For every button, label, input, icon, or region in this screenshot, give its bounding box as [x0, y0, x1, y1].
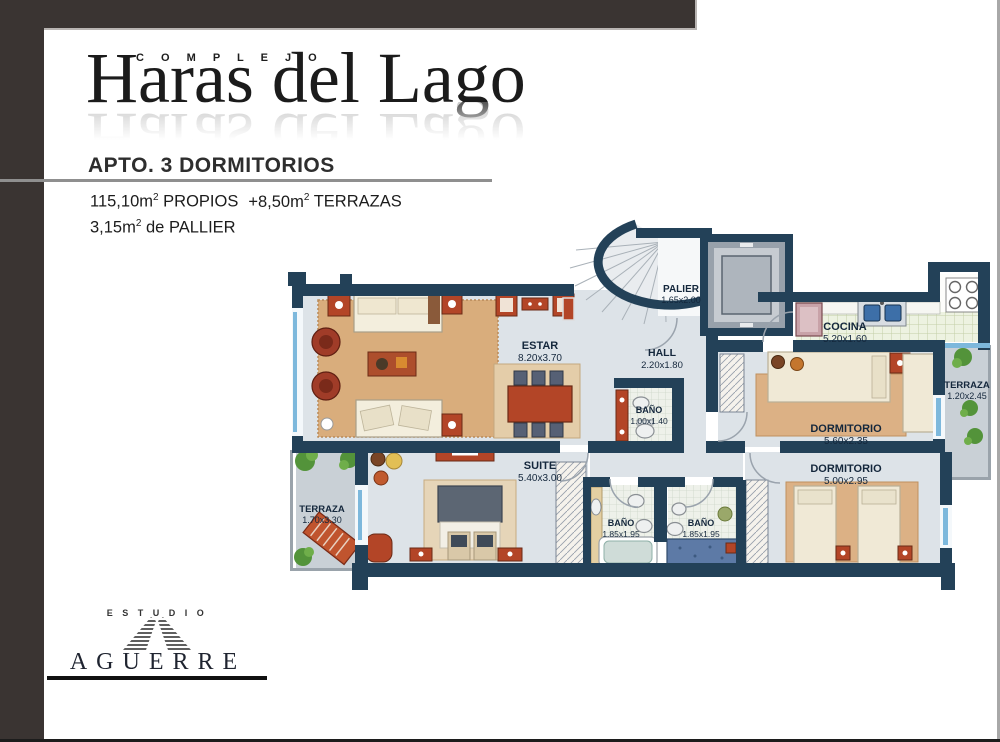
svg-text:5.60x2.35: 5.60x2.35: [824, 436, 868, 447]
title-underline: [0, 179, 492, 182]
label-terraza-oeste: TERRAZA: [299, 504, 345, 515]
logo-underline: [47, 676, 267, 680]
label-estar: ESTAR: [522, 340, 559, 352]
label-dormitorio-1: DORMITORIO: [810, 423, 882, 435]
brand-title-reflection: Haras del Lago: [86, 102, 526, 148]
svg-text:8.20x3.70: 8.20x3.70: [518, 353, 562, 364]
stove-icon: [946, 278, 982, 312]
frame-top-bar: [0, 0, 697, 30]
svg-text:1.85x1.95: 1.85x1.95: [602, 529, 640, 539]
svg-text:5.00x2.95: 5.00x2.95: [824, 476, 868, 487]
svg-text:1.00x1.40: 1.00x1.40: [630, 416, 668, 426]
svg-text:2.20x1.80: 2.20x1.80: [641, 360, 683, 371]
label-hall: HALL: [648, 347, 677, 359]
floor-plan: PALIER 1.65x2.00 ESTAR 8.20x3.70 HALL 2.…: [0, 200, 1000, 600]
studio-logo: E S T U D I O AGUERRE: [40, 595, 280, 690]
arch-icon: [123, 617, 191, 650]
apartment-title: APTO. 3 DORMITORIOS: [88, 154, 335, 178]
elevator: [700, 234, 793, 336]
svg-text:1.65x2.00: 1.65x2.00: [661, 295, 701, 305]
label-cocina: COCINA: [823, 321, 866, 333]
flyer-page: C O M P L E J O Haras del Lago Haras del…: [0, 0, 1000, 742]
svg-text:5.20x1.60: 5.20x1.60: [823, 334, 867, 345]
label-banio-hall: BAÑO: [636, 405, 663, 415]
label-suite: SUITE: [524, 460, 556, 472]
label-terraza-este: TERRAZA: [944, 380, 990, 391]
studio-kicker: E S T U D I O: [107, 608, 208, 618]
label-banio-suite: BAÑO: [608, 518, 635, 528]
studio-name: AGUERRE: [70, 649, 246, 675]
svg-text:5.40x3.00: 5.40x3.00: [518, 473, 562, 484]
brand-kicker: C O M P L E J O: [136, 52, 324, 64]
fridge-icon: [796, 303, 822, 336]
svg-text:1.20x2.45: 1.20x2.45: [947, 391, 987, 401]
svg-text:1.85x1.95: 1.85x1.95: [682, 529, 720, 539]
label-palier: PALIER: [663, 284, 700, 295]
label-banio-2: BAÑO: [688, 518, 715, 528]
radiator-icon: [563, 298, 574, 320]
brand-block: C O M P L E J O Haras del Lago Haras del…: [86, 42, 526, 148]
svg-text:1.70x3.30: 1.70x3.30: [302, 515, 342, 525]
label-dormitorio-2: DORMITORIO: [810, 463, 882, 475]
